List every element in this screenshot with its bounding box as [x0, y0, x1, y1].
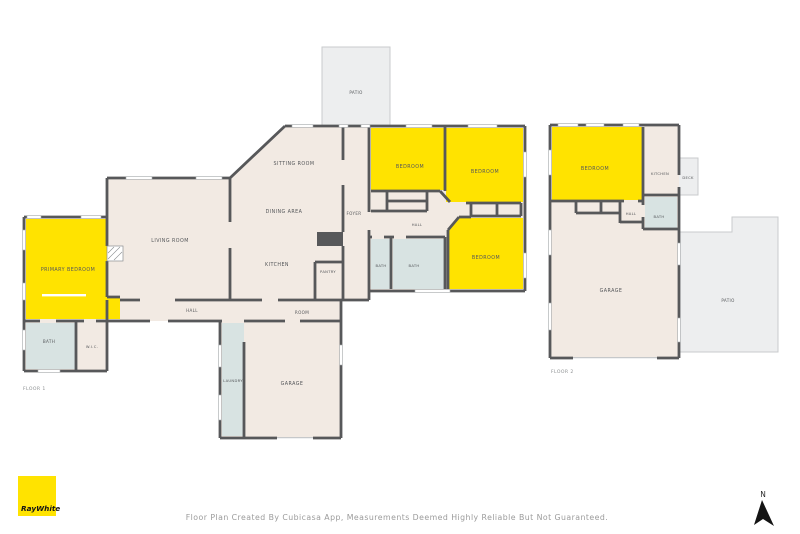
disclaimer-text: Floor Plan Created By Cubicasa App, Meas…	[186, 513, 609, 522]
floor1-label-garage: GARAGE	[281, 381, 304, 387]
floor1-label-primary-bedroom: PRIMARY BEDROOM	[41, 267, 95, 273]
floor2-label-deck: DECK	[682, 176, 694, 180]
floor1-label-wic: W.I.C.	[86, 345, 98, 349]
floor1-label-hall-bedrooms: HALL	[412, 223, 423, 227]
floor1-title: FLOOR 1	[23, 386, 46, 392]
floor1-main-floor	[107, 126, 369, 321]
floor-plan-page: PATIO SITTING ROOM DINING AREA LIVING RO…	[0, 0, 800, 534]
floor1-plan: PATIO SITTING ROOM DINING AREA LIVING RO…	[23, 47, 527, 438]
north-arrow: N	[754, 490, 774, 526]
floor1-label-sitting-room: SITTING ROOM	[274, 161, 315, 167]
floor1-label-laundry: LAUNDRY	[223, 379, 243, 383]
floor1-label-living-room: LIVING ROOM	[151, 238, 189, 244]
floor2-label-bath: BATH	[654, 215, 665, 219]
floor1-label-bath-master: BATH	[43, 339, 55, 344]
floor1-room-bedroom-c	[448, 218, 523, 289]
floor2-label-kitchen: KITCHEN	[651, 172, 669, 176]
floor1-label-patio: PATIO	[349, 90, 362, 95]
floor1-room-bedroom-b	[446, 128, 523, 202]
floor1-label-bedroom-b: BEDROOM	[471, 169, 499, 175]
floor1-label-bedroom-a: BEDROOM	[396, 164, 424, 170]
floor1-label-hall: HALL	[186, 308, 198, 313]
raywhite-logo: RayWhite	[18, 476, 60, 516]
floor1-label-bath-b: BATH	[409, 264, 420, 268]
north-arrow-needle	[754, 500, 774, 526]
floor1-label-room: ROOM	[295, 310, 309, 315]
floor2-label-patio: PATIO	[721, 298, 734, 303]
floor2-label-bedroom: BEDROOM	[581, 166, 609, 172]
floor1-label-kitchen: KITCHEN	[265, 262, 289, 268]
north-label: N	[760, 490, 766, 499]
floor2-room-bath	[645, 197, 677, 228]
floor1-room-bedroom-a	[371, 128, 444, 190]
floor1-label-foyer: FOYER	[346, 211, 361, 216]
floor1-label-pantry: PANTRY	[320, 270, 336, 274]
floor-plan-canvas: PATIO SITTING ROOM DINING AREA LIVING RO…	[0, 0, 800, 534]
floor1-room-patio	[322, 47, 390, 127]
floor2-room-bedroom	[552, 127, 643, 200]
floor2-label-garage: GARAGE	[600, 288, 623, 294]
floor1-chimney	[317, 232, 343, 246]
fireplace-icon	[107, 246, 123, 261]
floor2-title: FLOOR 2	[551, 369, 574, 375]
floor1-label-dining-area: DINING AREA	[266, 209, 303, 215]
floor1-label-bedroom-c: BEDROOM	[472, 255, 500, 261]
floor2-label-hall: HALL	[626, 212, 637, 216]
floor1-room-bath-master	[26, 323, 75, 369]
floor1-label-bath-a: BATH	[376, 264, 387, 268]
floor1-primary-bedroom-slider-door	[42, 294, 86, 296]
floor2-plan: BEDROOM KITCHEN DECK HALL BATH GARAGE PA…	[549, 124, 778, 375]
floor2-room-patio	[679, 217, 778, 352]
raywhite-logo-text: RayWhite	[21, 504, 60, 513]
